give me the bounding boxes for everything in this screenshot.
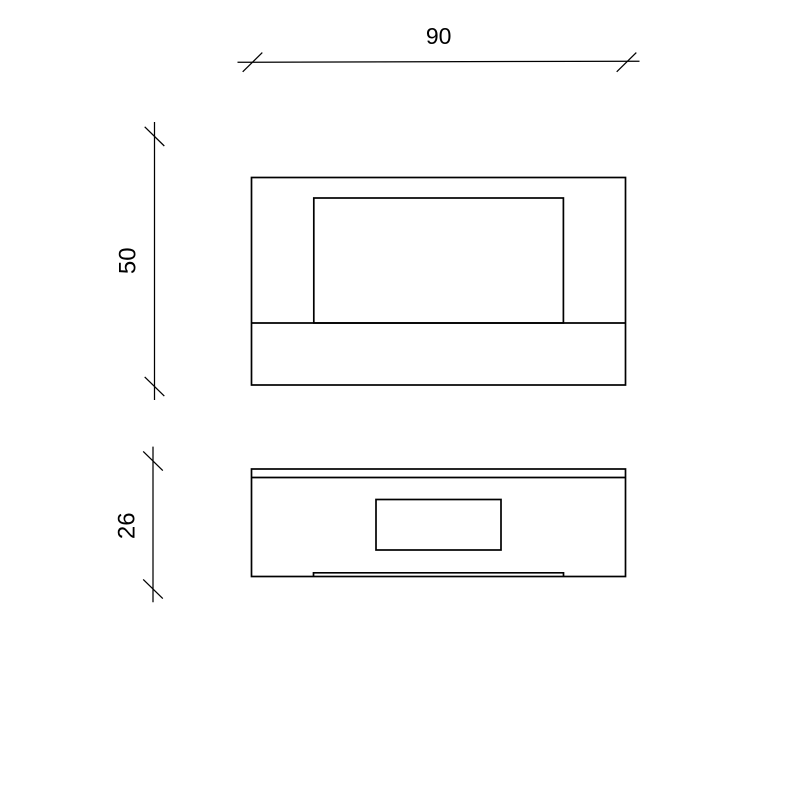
svg-text:26: 26 [114,512,141,539]
svg-text:50: 50 [115,247,142,274]
svg-text:90: 90 [426,23,452,49]
